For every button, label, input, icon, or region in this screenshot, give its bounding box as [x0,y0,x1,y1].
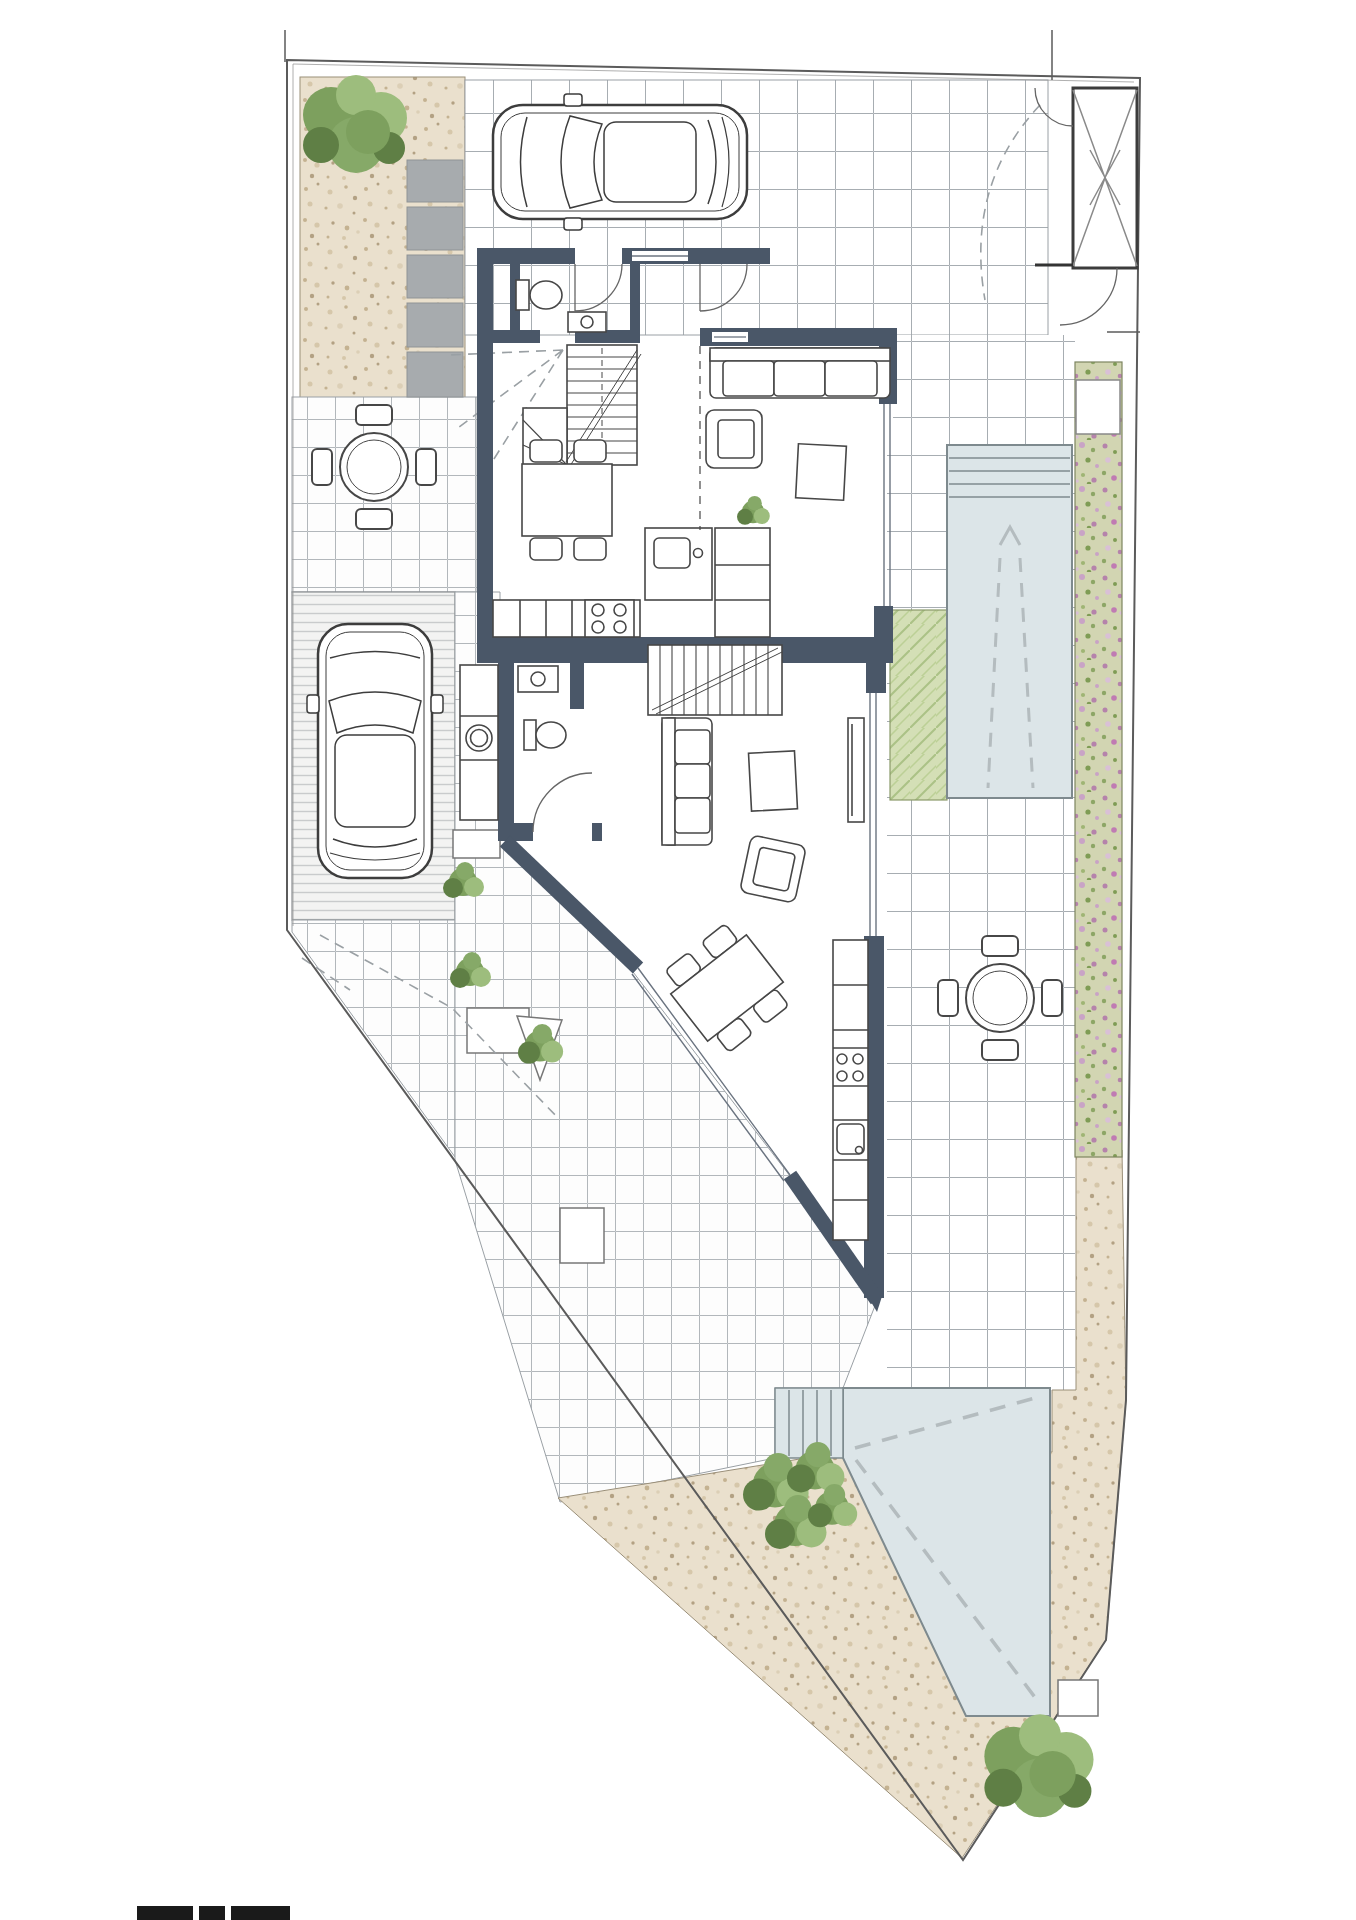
northeast-patio-tiles [893,335,1075,445]
pool-equipment-pad [1058,1680,1098,1716]
flower-border-east [1075,362,1122,1157]
kitchen-lower [833,940,868,1240]
staircase-lower [648,645,782,715]
sink-upper [654,538,690,568]
grass-strip [890,610,947,800]
toilet-tank-icon [516,280,529,310]
coffee-table-upper [796,444,847,500]
tv-board [848,718,864,822]
coffee-table-lower [749,751,798,811]
toilet-lower [536,722,566,748]
living-upper [700,346,890,530]
car-west [307,624,443,878]
cooktop-upper [585,600,634,637]
toilet-icon [530,281,562,309]
indoor-plant-icon [737,496,770,525]
dining-table-lower [671,935,784,1041]
west-path-triangle [292,920,455,1157]
site-plan-page [0,0,1356,1920]
gate-swing-south [1060,268,1117,325]
tall-units [715,528,770,637]
dining-table-upper [522,464,612,536]
car-north [493,94,747,230]
toilet-tank-lower [524,720,536,750]
stepping-stones [407,160,463,397]
site-plan-drawing [0,0,1356,1920]
equipment-pad [1076,380,1120,434]
scale-bar [137,1906,290,1920]
boundary-ticks [285,30,1052,80]
